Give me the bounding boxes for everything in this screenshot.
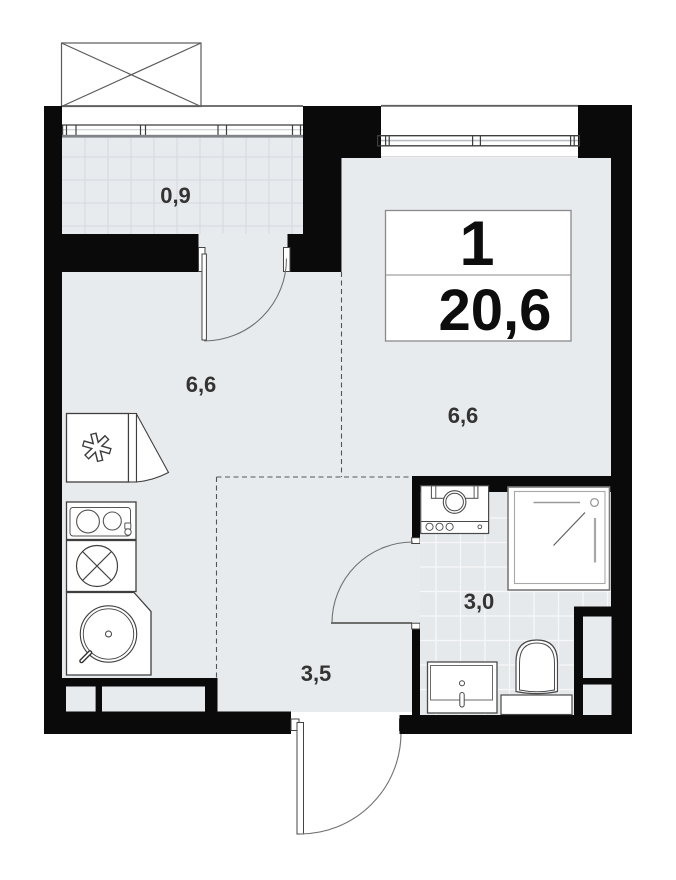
svg-text:0,9: 0,9 bbox=[160, 183, 191, 208]
svg-text:6,6: 6,6 bbox=[186, 372, 217, 397]
svg-text:20,6: 20,6 bbox=[439, 278, 552, 343]
svg-text:1: 1 bbox=[459, 209, 494, 279]
svg-text:6,6: 6,6 bbox=[448, 403, 479, 428]
svg-text:3,0: 3,0 bbox=[464, 589, 495, 614]
svg-text:3,5: 3,5 bbox=[301, 661, 332, 686]
